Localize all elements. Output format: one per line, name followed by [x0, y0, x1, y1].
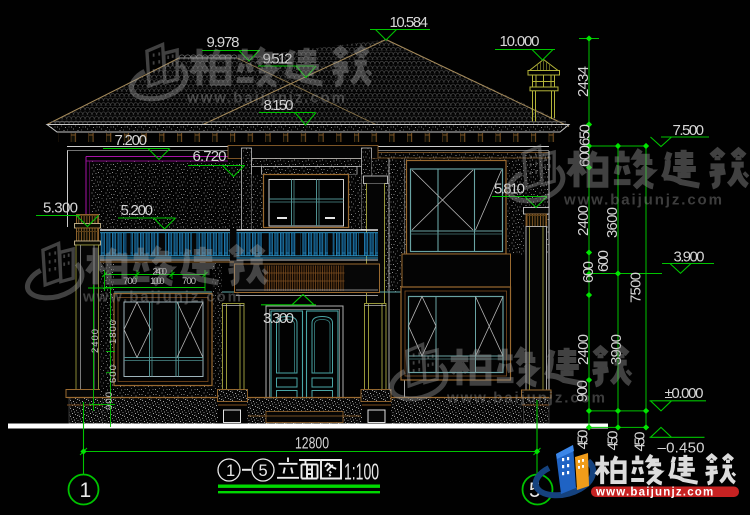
- svg-text:600: 600: [580, 261, 597, 283]
- svg-text:2400: 2400: [575, 334, 592, 365]
- svg-text:3.300: 3.300: [263, 310, 294, 327]
- svg-text:3.900: 3.900: [674, 249, 705, 266]
- svg-text:600: 600: [595, 250, 612, 272]
- svg-text:450: 450: [575, 430, 592, 450]
- svg-text:5: 5: [259, 462, 268, 480]
- svg-text:1800: 1800: [108, 320, 119, 344]
- svg-text:9.978: 9.978: [207, 34, 240, 51]
- svg-text:7.200: 7.200: [115, 132, 148, 149]
- svg-text:10.584: 10.584: [390, 14, 429, 31]
- svg-text:±0.000: ±0.000: [665, 385, 704, 402]
- svg-text:600: 600: [108, 365, 119, 383]
- svg-text:5.200: 5.200: [121, 202, 154, 219]
- svg-text:450: 450: [632, 432, 649, 452]
- svg-text:450: 450: [605, 431, 622, 451]
- svg-text:5.300: 5.300: [43, 200, 78, 217]
- svg-text:2400: 2400: [90, 329, 101, 353]
- svg-text:650: 650: [577, 124, 594, 146]
- svg-text:900: 900: [104, 392, 115, 410]
- svg-text:1: 1: [80, 479, 92, 502]
- svg-text:3600: 3600: [604, 207, 621, 238]
- svg-text:2434: 2434: [575, 66, 592, 97]
- svg-text:–0.450: –0.450: [658, 440, 705, 457]
- svg-text:10.000: 10.000: [500, 33, 540, 50]
- svg-text:www.baijunjz.com: www.baijunjz.com: [595, 487, 714, 499]
- svg-text:6.720: 6.720: [193, 148, 227, 165]
- svg-text:7.500: 7.500: [673, 122, 705, 139]
- svg-text:2400: 2400: [575, 205, 592, 236]
- svg-text:7500: 7500: [628, 272, 645, 303]
- svg-text:1:100: 1:100: [344, 459, 379, 485]
- svg-text:1: 1: [226, 462, 235, 480]
- svg-text:12800: 12800: [295, 434, 329, 453]
